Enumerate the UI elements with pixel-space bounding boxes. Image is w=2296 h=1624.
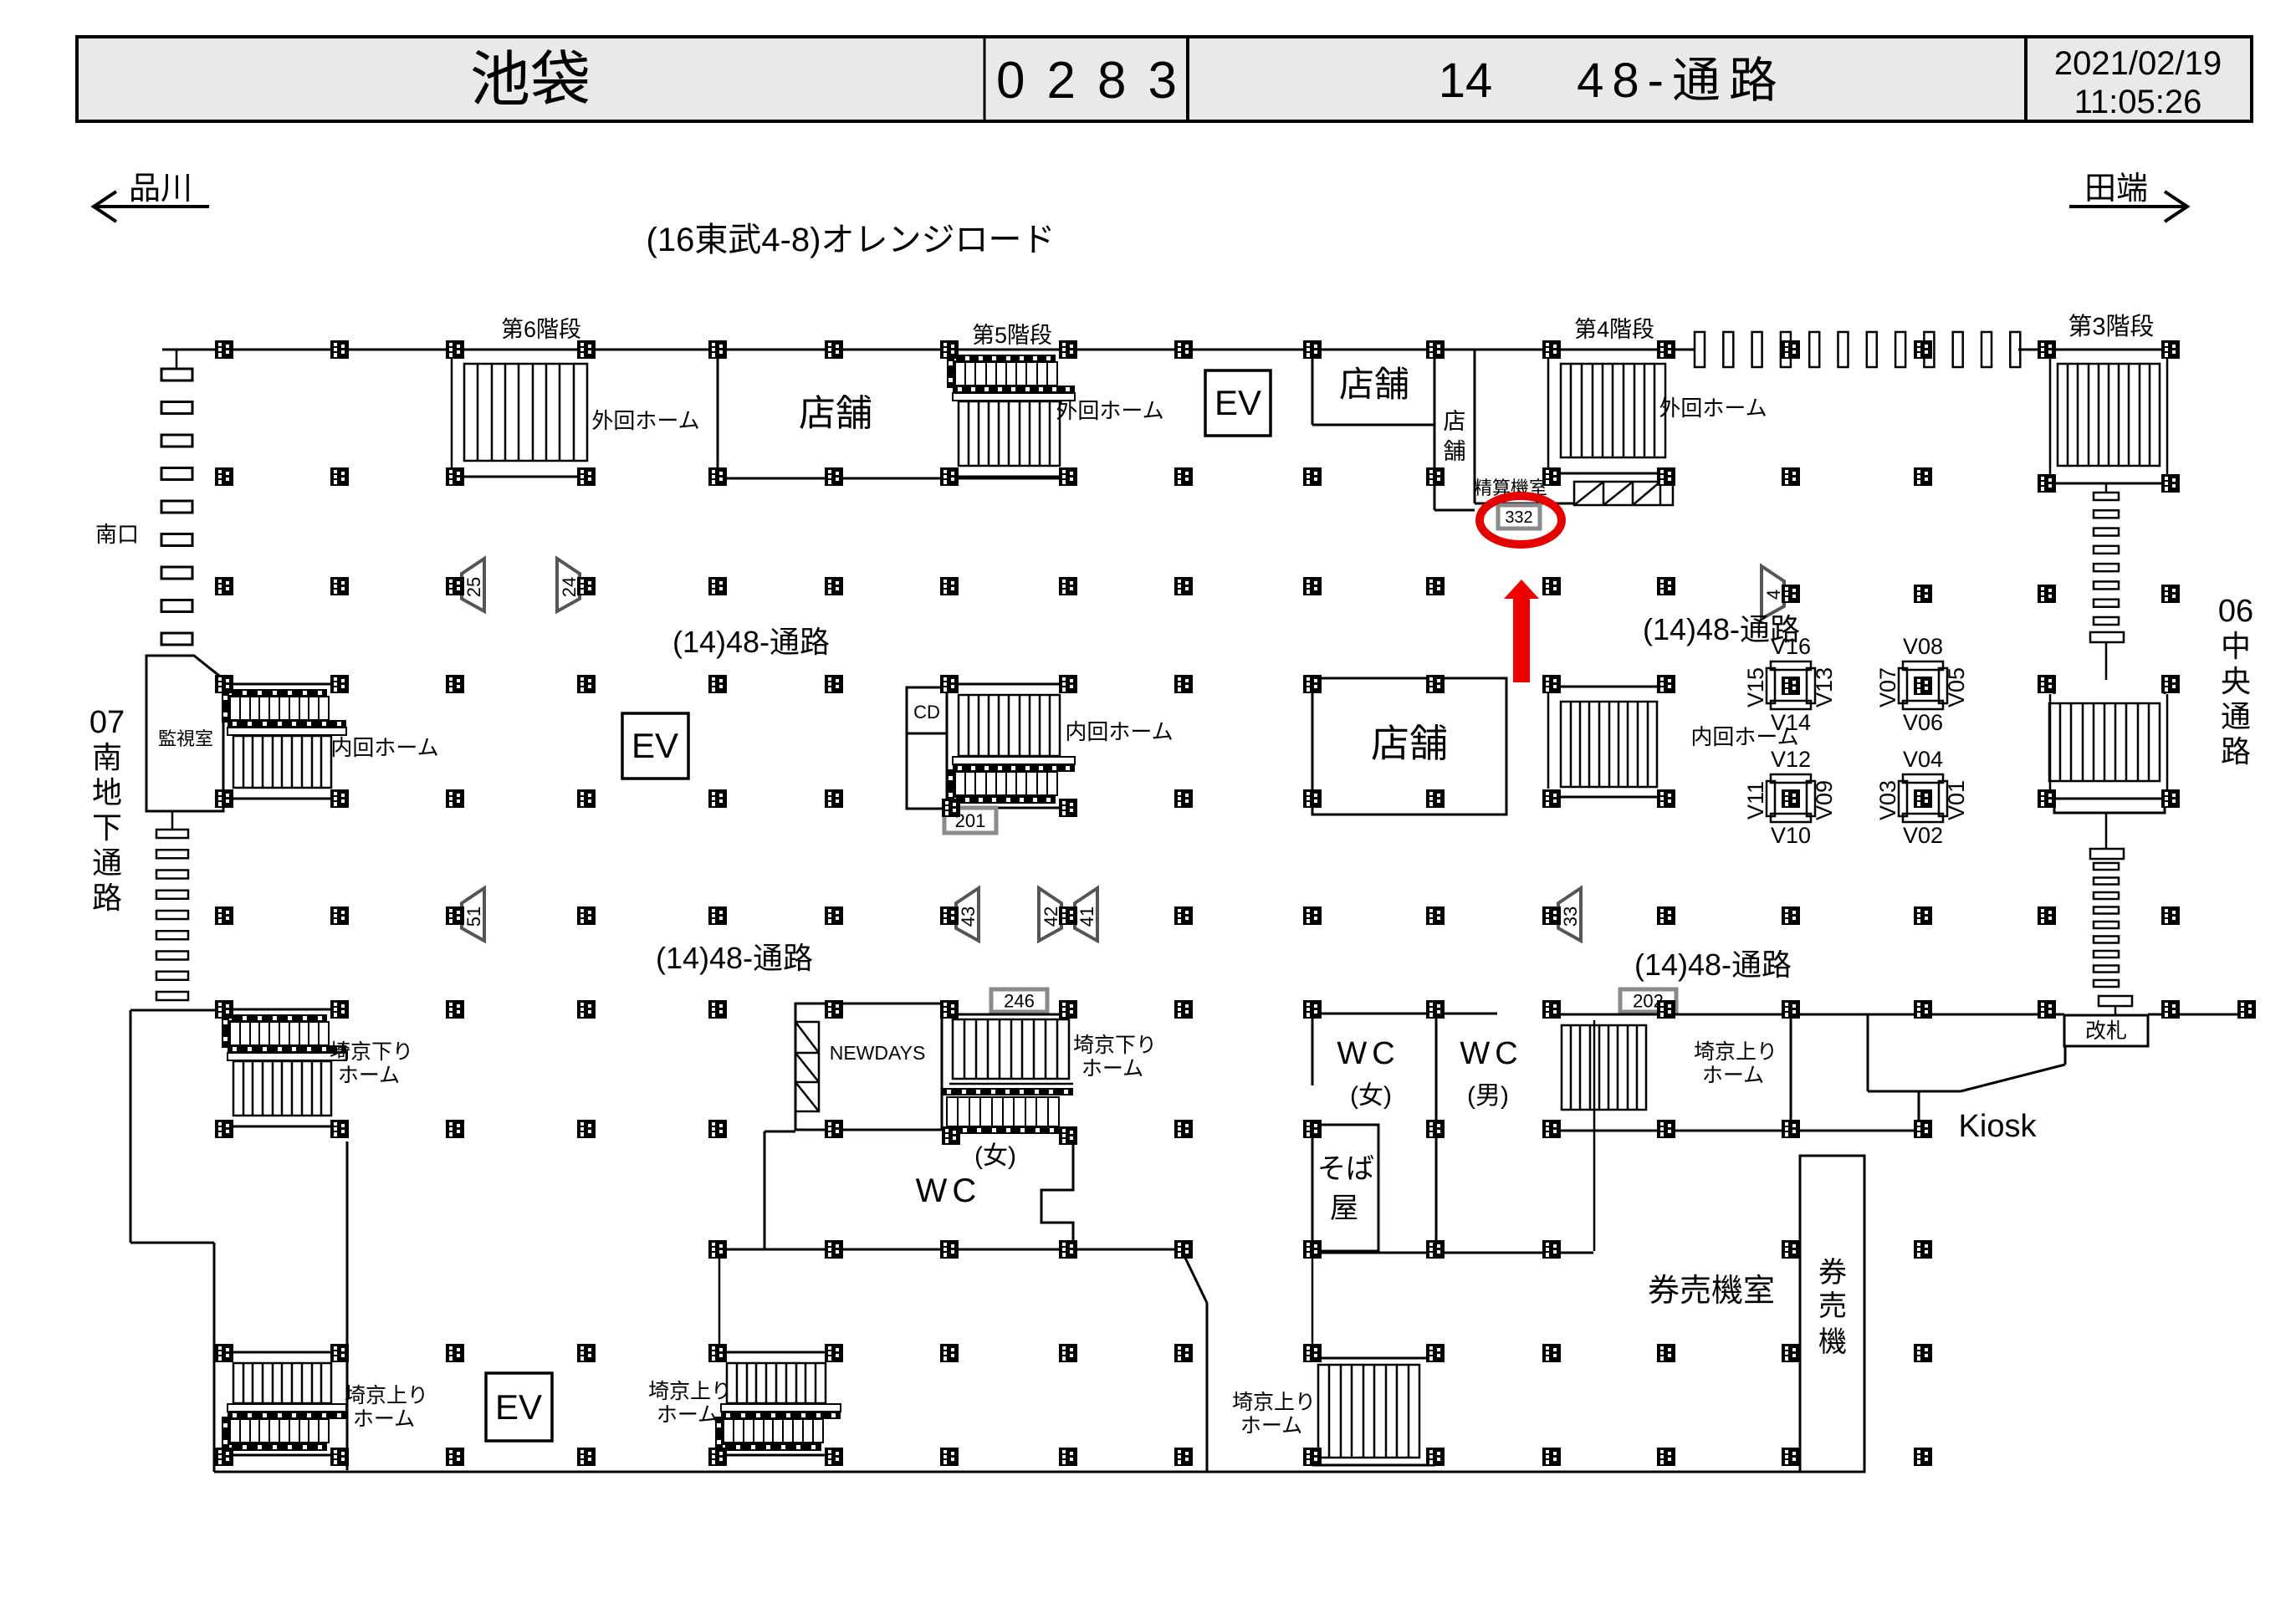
svg-text:246: 246 bbox=[1004, 990, 1035, 1011]
svg-text:中: 中 bbox=[2221, 629, 2251, 663]
svg-text:南口: 南口 bbox=[95, 522, 139, 547]
svg-text:ホーム: ホーム bbox=[657, 1403, 718, 1427]
svg-text:ホーム: ホーム bbox=[353, 1407, 415, 1431]
svg-text:埼京上り: 埼京上り bbox=[1232, 1391, 1316, 1414]
svg-text:ホーム: ホーム bbox=[338, 1064, 400, 1087]
svg-text:332: 332 bbox=[1505, 508, 1532, 527]
svg-text:そば: そば bbox=[1317, 1153, 1374, 1185]
svg-text:06: 06 bbox=[2218, 594, 2253, 629]
svg-text:田端: 田端 bbox=[2084, 171, 2148, 207]
svg-text:(女): (女) bbox=[974, 1142, 1016, 1170]
svg-text:0283: 0283 bbox=[996, 52, 1199, 110]
svg-text:V05: V05 bbox=[1944, 667, 1969, 707]
svg-text:売: 売 bbox=[1818, 1290, 1847, 1322]
svg-text:埼京上り: 埼京上り bbox=[648, 1380, 732, 1403]
svg-text:内回ホーム: 内回ホーム bbox=[1065, 719, 1173, 744]
svg-text:WC: WC bbox=[916, 1172, 982, 1209]
svg-text:14: 14 bbox=[1439, 54, 1493, 108]
svg-text:改札: 改札 bbox=[2085, 1019, 2127, 1043]
svg-text:店舗: 店舗 bbox=[1371, 722, 1448, 765]
svg-text:V07: V07 bbox=[1875, 667, 1900, 707]
svg-text:NEWDAYS: NEWDAYS bbox=[830, 1042, 926, 1064]
svg-text:42: 42 bbox=[1041, 906, 1061, 927]
svg-text:券: 券 bbox=[1818, 1257, 1847, 1289]
svg-text:内回ホーム: 内回ホーム bbox=[330, 735, 438, 760]
svg-text:埼京上り: 埼京上り bbox=[1694, 1040, 1777, 1064]
svg-text:(14)48-通路: (14)48-通路 bbox=[1634, 947, 1792, 982]
svg-text:屋: 屋 bbox=[1330, 1192, 1358, 1224]
svg-text:V15: V15 bbox=[1743, 667, 1768, 707]
svg-text:EV: EV bbox=[632, 726, 678, 765]
svg-text:地: 地 bbox=[92, 775, 122, 809]
svg-text:24: 24 bbox=[559, 577, 580, 597]
svg-text:41: 41 bbox=[1076, 906, 1097, 927]
svg-text:第6階段: 第6階段 bbox=[501, 317, 581, 342]
svg-text:V11: V11 bbox=[1743, 781, 1768, 820]
svg-text:EV: EV bbox=[1214, 383, 1261, 422]
svg-text:埼京下り: 埼京下り bbox=[1073, 1034, 1157, 1057]
svg-text:CD: CD bbox=[913, 702, 940, 723]
svg-text:V06: V06 bbox=[1903, 710, 1943, 735]
svg-text:Kiosk: Kiosk bbox=[1959, 1109, 2038, 1144]
svg-text:(14)48-通路: (14)48-通路 bbox=[672, 625, 830, 659]
svg-text:第3階段: 第3階段 bbox=[2068, 313, 2154, 340]
svg-text:第4階段: 第4階段 bbox=[1574, 317, 1654, 342]
svg-text:WC: WC bbox=[1460, 1036, 1522, 1071]
svg-text:通: 通 bbox=[2221, 699, 2251, 733]
svg-text:V13: V13 bbox=[1812, 667, 1837, 707]
svg-text:07: 07 bbox=[89, 705, 125, 740]
svg-text:舗: 舗 bbox=[1444, 439, 1466, 464]
svg-text:43: 43 bbox=[958, 906, 979, 927]
svg-text:V16: V16 bbox=[1771, 634, 1811, 659]
svg-text:路: 路 bbox=[2221, 734, 2251, 769]
svg-text:下: 下 bbox=[92, 810, 122, 845]
svg-text:池袋: 池袋 bbox=[470, 47, 591, 114]
svg-text:(女): (女) bbox=[1350, 1082, 1392, 1110]
svg-text:11:05:26: 11:05:26 bbox=[2074, 84, 2202, 120]
svg-text:(14)48-通路: (14)48-通路 bbox=[656, 941, 813, 975]
svg-text:EV: EV bbox=[495, 1387, 542, 1427]
svg-text:央: 央 bbox=[2221, 664, 2251, 698]
svg-text:(16東武4-8)オレンジロード: (16東武4-8)オレンジロード bbox=[647, 222, 1056, 258]
svg-text:店舗: 店舗 bbox=[799, 393, 872, 434]
svg-text:外回ホーム: 外回ホーム bbox=[1659, 396, 1767, 421]
svg-text:V01: V01 bbox=[1944, 780, 1969, 820]
svg-text:外回ホーム: 外回ホーム bbox=[591, 408, 699, 433]
svg-text:品川: 品川 bbox=[129, 171, 192, 207]
svg-text:機: 機 bbox=[1818, 1326, 1847, 1358]
svg-text:4: 4 bbox=[1763, 590, 1784, 600]
svg-text:V09: V09 bbox=[1812, 780, 1837, 820]
svg-text:V12: V12 bbox=[1771, 747, 1811, 772]
svg-text:(男): (男) bbox=[1467, 1082, 1509, 1110]
svg-text:埼京上り: 埼京上り bbox=[345, 1384, 428, 1407]
svg-text:店舗: 店舗 bbox=[1339, 365, 1409, 404]
svg-text:V08: V08 bbox=[1903, 634, 1943, 659]
svg-text:南: 南 bbox=[92, 740, 122, 774]
svg-text:25: 25 bbox=[463, 577, 484, 597]
svg-text:2021/02/19: 2021/02/19 bbox=[2054, 45, 2222, 82]
svg-text:51: 51 bbox=[463, 906, 484, 927]
svg-text:WC: WC bbox=[1337, 1036, 1399, 1071]
svg-text:V03: V03 bbox=[1875, 780, 1900, 820]
svg-text:ホーム: ホーム bbox=[1082, 1057, 1143, 1080]
svg-text:第5階段: 第5階段 bbox=[972, 323, 1052, 348]
svg-text:外回ホーム: 外回ホーム bbox=[1056, 398, 1163, 423]
svg-text:監視室: 監視室 bbox=[158, 728, 213, 749]
svg-text:ホーム: ホーム bbox=[1240, 1414, 1302, 1438]
svg-text:通: 通 bbox=[92, 845, 122, 880]
svg-text:V02: V02 bbox=[1903, 823, 1943, 848]
svg-text:券売機室: 券売機室 bbox=[1648, 1274, 1775, 1309]
svg-text:48-通路: 48-通路 bbox=[1577, 54, 1786, 108]
svg-text:V04: V04 bbox=[1903, 747, 1943, 772]
svg-text:V14: V14 bbox=[1771, 710, 1811, 735]
svg-text:埼京下り: 埼京下り bbox=[330, 1040, 413, 1064]
svg-text:33: 33 bbox=[1560, 906, 1581, 927]
svg-text:ホーム: ホーム bbox=[1702, 1064, 1764, 1087]
svg-text:店: 店 bbox=[1444, 409, 1466, 434]
svg-text:V10: V10 bbox=[1771, 823, 1811, 848]
svg-text:路: 路 bbox=[92, 881, 122, 915]
